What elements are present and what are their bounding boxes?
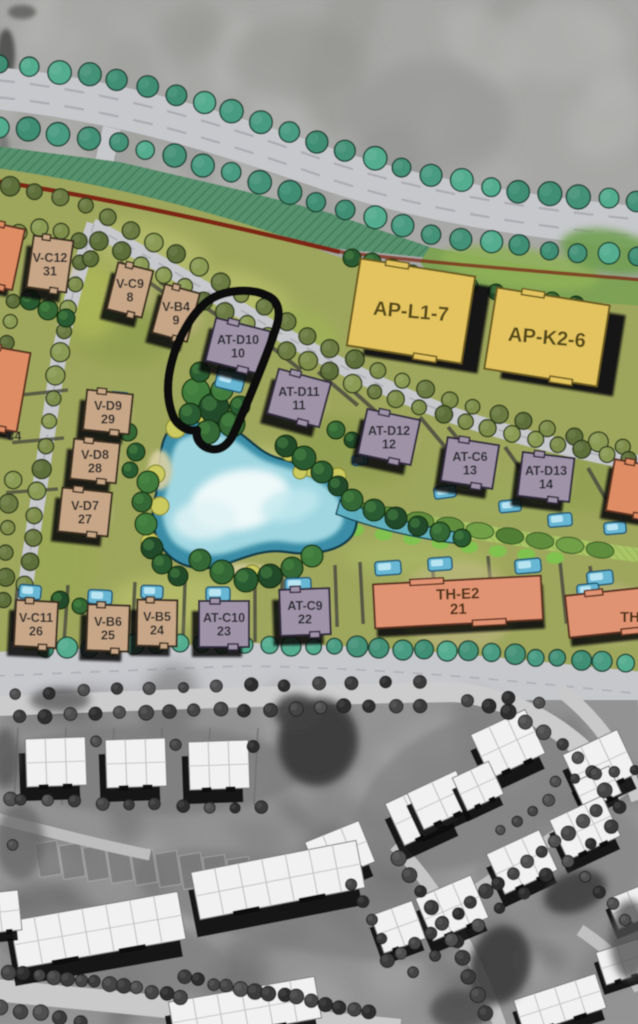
svg-text:V-B6: V-B6 (94, 615, 122, 629)
svg-text:AT-D12: AT-D12 (368, 424, 410, 438)
svg-text:23: 23 (217, 625, 231, 639)
svg-text:AT-D10: AT-D10 (217, 333, 259, 347)
svg-text:V-D9: V-D9 (94, 399, 122, 413)
svg-text:V-B4: V-B4 (162, 300, 190, 314)
svg-text:22: 22 (298, 613, 312, 627)
svg-text:29: 29 (101, 413, 115, 427)
svg-text:24: 24 (150, 624, 164, 638)
svg-text:AT-D13: AT-D13 (525, 464, 567, 478)
svg-text:V-B5: V-B5 (143, 610, 171, 624)
svg-text:AT-C9: AT-C9 (287, 599, 322, 613)
svg-text:9: 9 (173, 314, 180, 328)
svg-text:27: 27 (78, 513, 92, 527)
svg-text:13: 13 (463, 464, 477, 478)
svg-text:8: 8 (127, 291, 134, 305)
svg-text:V-C12: V-C12 (33, 251, 68, 265)
svg-text:AT-D11: AT-D11 (278, 385, 319, 399)
svg-text:26: 26 (29, 625, 43, 639)
svg-text:V-C9: V-C9 (116, 277, 144, 291)
svg-text:V-C11: V-C11 (19, 611, 53, 625)
svg-text:AT-C10: AT-C10 (203, 611, 245, 625)
svg-text:12: 12 (382, 438, 396, 452)
svg-text:28: 28 (88, 462, 102, 476)
svg-text:TH-: TH- (620, 609, 638, 626)
svg-text:31: 31 (43, 265, 57, 279)
svg-text:AT-C6: AT-C6 (452, 450, 487, 464)
svg-text:V-D8: V-D8 (81, 448, 109, 462)
svg-text:V-D7: V-D7 (71, 499, 99, 513)
svg-text:11: 11 (292, 399, 305, 413)
svg-text:10: 10 (231, 347, 245, 361)
svg-text:25: 25 (101, 629, 115, 643)
svg-text:C4: C4 (6, 429, 22, 443)
svg-text:21: 21 (450, 601, 467, 619)
svg-text:14: 14 (539, 478, 553, 492)
